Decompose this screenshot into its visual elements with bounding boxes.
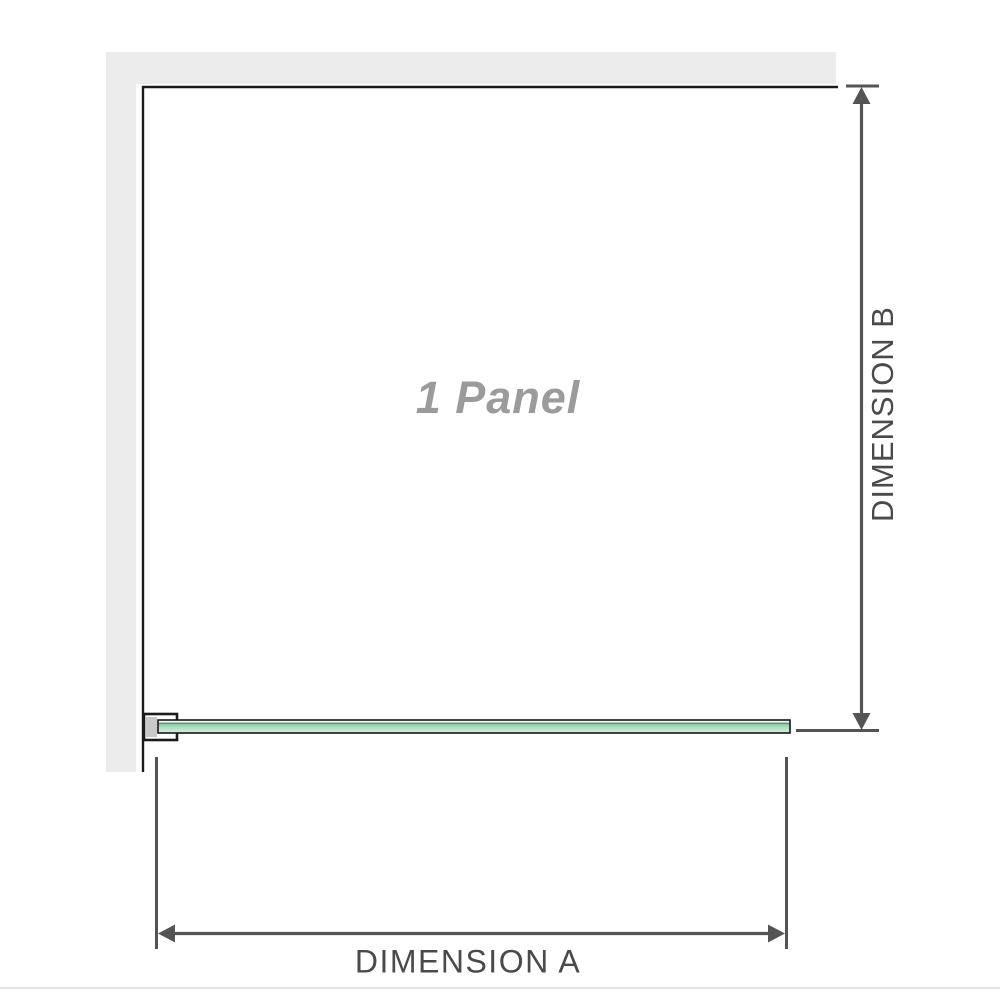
dimension-b-arrowhead-down-icon [853, 713, 871, 730]
dimension-a-label: DIMENSION A [355, 944, 581, 981]
diagram-canvas [0, 0, 1000, 1000]
dimension-a-arrowhead-right-icon [768, 925, 785, 943]
dimension-a-arrowhead-left-icon [158, 925, 175, 943]
dimension-b-arrowhead-up-icon [853, 87, 871, 104]
dimension-diagram: 1 Panel DIMENSION A DIMENSION B [0, 0, 1000, 1000]
dimension-a-indicator [157, 757, 787, 949]
panel-count-label: 1 Panel [416, 372, 581, 424]
bracket-pad [146, 717, 157, 737]
wall-left-strip [106, 52, 136, 772]
glass-panel [158, 720, 790, 733]
wall-top-strip [106, 52, 836, 84]
dimension-b-label: DIMENSION B [865, 306, 901, 522]
